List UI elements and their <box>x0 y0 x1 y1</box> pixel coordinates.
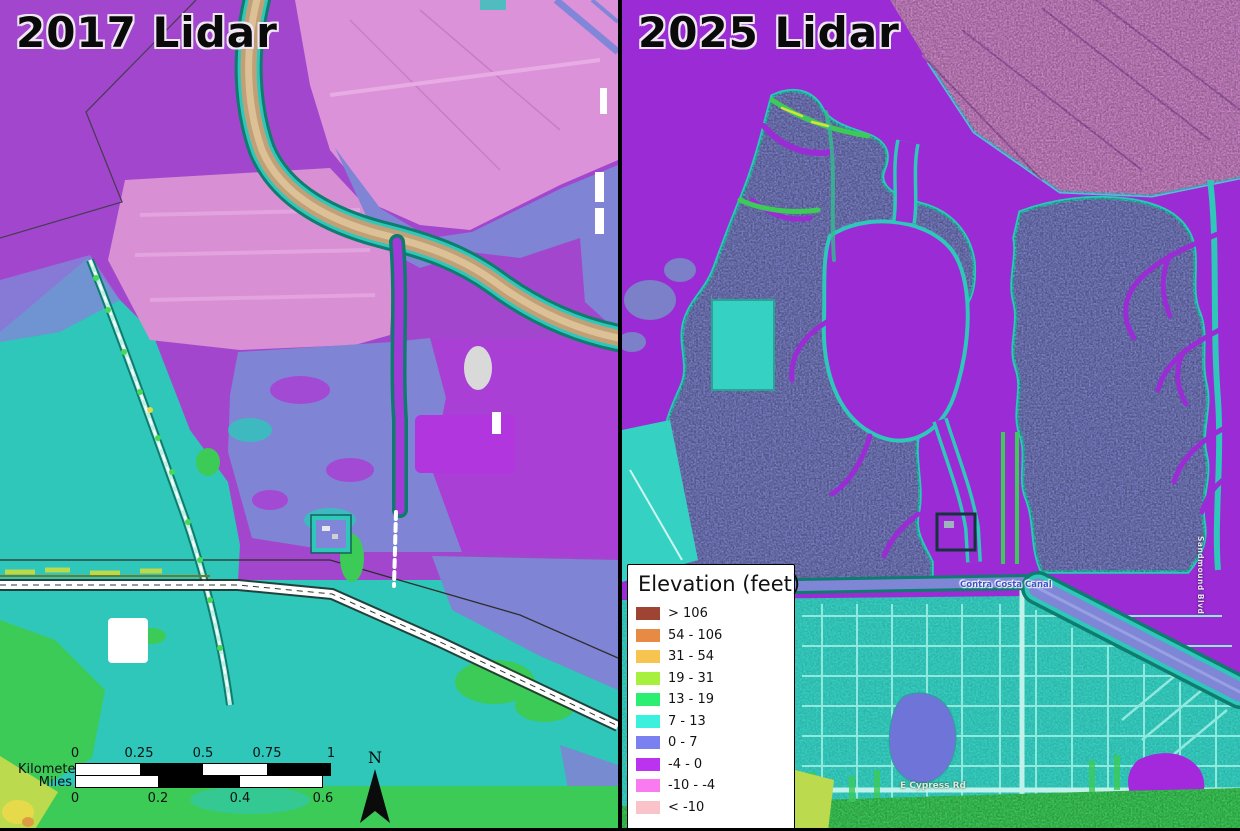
legend-swatch <box>636 779 660 792</box>
map-2017 <box>0 0 618 831</box>
legend-swatch <box>636 650 660 663</box>
gray-patch <box>464 346 492 390</box>
legend-row: 31 - 54 <box>636 646 786 668</box>
panel-2025-lidar: 2025 Lidar Contra Costa Canal E Cypress … <box>622 0 1240 831</box>
legend-row: 54 - 106 <box>636 625 786 647</box>
map-title-2017: 2017 Lidar <box>16 8 278 57</box>
miles-bar <box>75 775 323 788</box>
legend-label: 31 - 54 <box>668 649 714 664</box>
mile-tick: 0 <box>71 791 79 806</box>
legend-row: 13 - 19 <box>636 689 786 711</box>
square-levee-structure <box>311 515 351 553</box>
lidar-comparison-figure: 2017 Lidar 0 0.25 0.5 0.75 1 Kilometers … <box>0 0 1240 831</box>
blue-pond <box>889 693 956 783</box>
km-tick: 0.75 <box>253 746 282 761</box>
north-arrow-icon <box>352 767 398 825</box>
legend-row: -10 - -4 <box>636 775 786 797</box>
legend-swatch <box>636 693 660 706</box>
legend-title: Elevation (feet) <box>638 572 786 596</box>
legend-swatch <box>636 629 660 642</box>
legend-row: 7 - 13 <box>636 711 786 733</box>
map-title-2025: 2025 Lidar <box>638 8 900 57</box>
north-label: N <box>352 748 398 767</box>
km-tick: 0.5 <box>193 746 214 761</box>
cypress-road-label: E Cypress Rd <box>900 781 966 791</box>
legend-row: 0 - 7 <box>636 732 786 754</box>
legend-label: > 106 <box>668 606 708 621</box>
legend-row: -4 - 0 <box>636 754 786 776</box>
legend-swatch <box>636 758 660 771</box>
sandmound-road-label: Sandmound Blvd <box>1196 536 1205 614</box>
legend-row: > 106 <box>636 603 786 625</box>
mile-tick: 0.4 <box>230 791 251 806</box>
legend-label: 54 - 106 <box>668 628 722 643</box>
legend-label: < -10 <box>668 800 704 815</box>
legend-label: 19 - 31 <box>668 671 714 686</box>
legend-swatch <box>636 736 660 749</box>
km-tick: 0.25 <box>125 746 154 761</box>
legend-label: -10 - -4 <box>668 778 715 793</box>
panel-2017-lidar: 2017 Lidar 0 0.25 0.5 0.75 1 Kilometers … <box>0 0 618 831</box>
km-tick: 0 <box>71 746 79 761</box>
mile-tick: 0.6 <box>313 791 334 806</box>
legend-swatch <box>636 672 660 685</box>
miles-unit-label: Miles <box>18 775 72 790</box>
legend-swatch <box>636 715 660 728</box>
mile-tick: 0.2 <box>148 791 169 806</box>
legend-label: 13 - 19 <box>668 692 714 707</box>
north-arrow: N <box>352 748 398 825</box>
legend-row: < -10 <box>636 797 786 819</box>
canal-label: Contra Costa Canal <box>960 580 1052 590</box>
scale-bar: 0 0.25 0.5 0.75 1 Kilometers Miles 0 0.2… <box>18 746 363 828</box>
legend-swatch <box>636 607 660 620</box>
legend-label: 0 - 7 <box>668 735 698 750</box>
legend-label: -4 - 0 <box>668 757 702 772</box>
legend-swatch <box>636 801 660 814</box>
teal-field <box>712 300 774 390</box>
teal-patch <box>228 418 272 442</box>
legend-label: 7 - 13 <box>668 714 706 729</box>
km-tick: 1 <box>327 746 335 761</box>
elevation-legend: Elevation (feet) > 106 54 - 106 31 - 54 … <box>627 564 795 831</box>
legend-row: 19 - 31 <box>636 668 786 690</box>
